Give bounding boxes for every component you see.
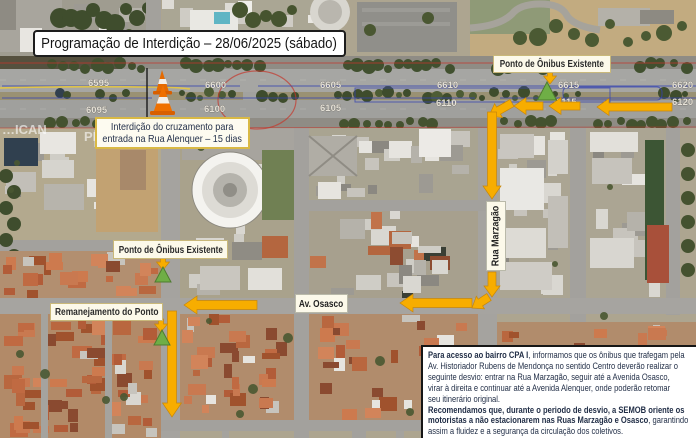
svg-text:6110: 6110	[436, 98, 457, 109]
svg-text:6620: 6620	[672, 80, 693, 91]
svg-text:6120: 6120	[672, 97, 693, 108]
svg-text:6610: 6610	[437, 80, 458, 91]
svg-text:6105: 6105	[320, 103, 342, 114]
svg-text:…ICAN: …ICAN	[2, 122, 47, 137]
svg-text:6605: 6605	[320, 80, 342, 91]
svg-text:6615: 6615	[558, 80, 580, 91]
svg-text:6600: 6600	[205, 80, 226, 91]
svg-text:6595: 6595	[88, 78, 110, 89]
svg-text:6095: 6095	[86, 105, 108, 116]
svg-text:6100: 6100	[204, 104, 225, 115]
